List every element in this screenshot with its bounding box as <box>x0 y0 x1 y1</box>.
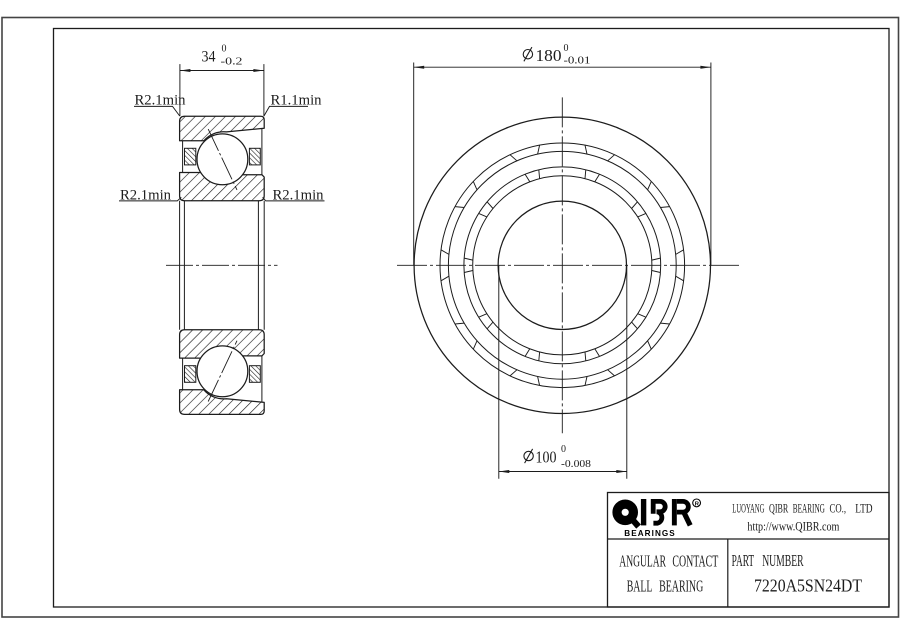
svg-text:34: 34 <box>202 49 216 66</box>
svg-text:-0.2: -0.2 <box>221 57 243 68</box>
svg-text:BALLBEARING: BALLBEARING <box>627 576 704 595</box>
svg-text:180: 180 <box>536 46 562 65</box>
svg-text:-0.01: -0.01 <box>564 55 591 66</box>
svg-text:http://www.QIBR.com: http://www.QIBR.com <box>747 520 839 534</box>
svg-text:BEARINGS: BEARINGS <box>624 528 676 538</box>
svg-text:R2.1min: R2.1min <box>135 92 186 108</box>
svg-text:PARTNUMBER: PARTNUMBER <box>732 551 804 570</box>
svg-text:100: 100 <box>536 448 557 467</box>
svg-text:-0.008: -0.008 <box>561 459 591 470</box>
svg-text:0: 0 <box>222 44 227 55</box>
svg-text:0: 0 <box>561 444 566 455</box>
svg-text:R1.1min: R1.1min <box>271 92 322 108</box>
svg-text:7220A5SN24DT: 7220A5SN24DT <box>754 575 862 595</box>
svg-text:0: 0 <box>564 43 569 54</box>
